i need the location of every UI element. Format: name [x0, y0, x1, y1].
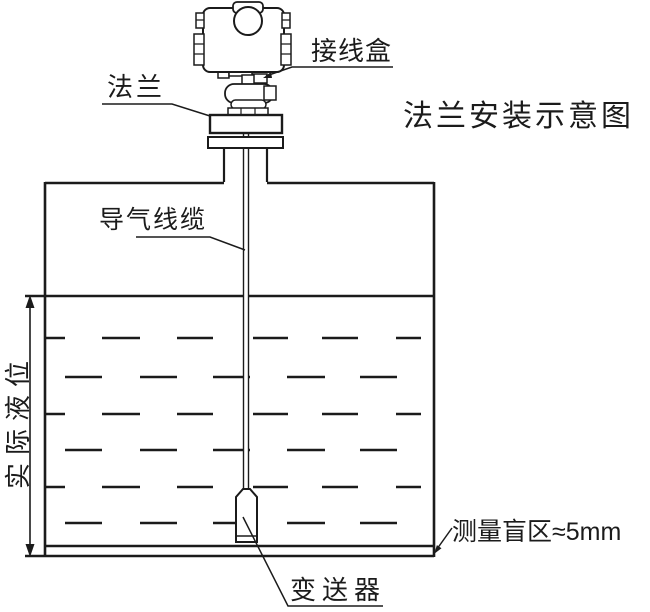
junction-box-leader-line [266, 67, 393, 76]
blind-zone-leader-line [437, 528, 452, 549]
transmitter-head-drawing [194, 2, 291, 116]
liquid-dashes [45, 338, 421, 523]
flange-label: 法兰 [107, 73, 165, 102]
junction-box-label: 接线盒 [311, 37, 392, 66]
housing-dome [234, 7, 262, 35]
actual-level-label: 实际液位 [4, 331, 34, 511]
air-cable-line [244, 130, 249, 491]
transmitter-label: 变送器 [290, 576, 386, 605]
probe-drawing [236, 489, 257, 542]
air-cable-label: 导气线缆 [99, 207, 207, 235]
diagram-title: 法兰安装示意图 [403, 100, 634, 133]
air-cable-leader-line [136, 237, 245, 250]
flange-leader-line [102, 104, 210, 116]
blind-zone-label: 测量盲区≈5mm [452, 519, 621, 547]
nozzle-flange-plate [208, 137, 283, 148]
flange-installation-diagram: 法兰安装示意图 接线盒 法兰 导气线缆 实际液位 测量盲区≈5mm 变送器 [0, 0, 650, 612]
flange-plate [210, 115, 282, 133]
